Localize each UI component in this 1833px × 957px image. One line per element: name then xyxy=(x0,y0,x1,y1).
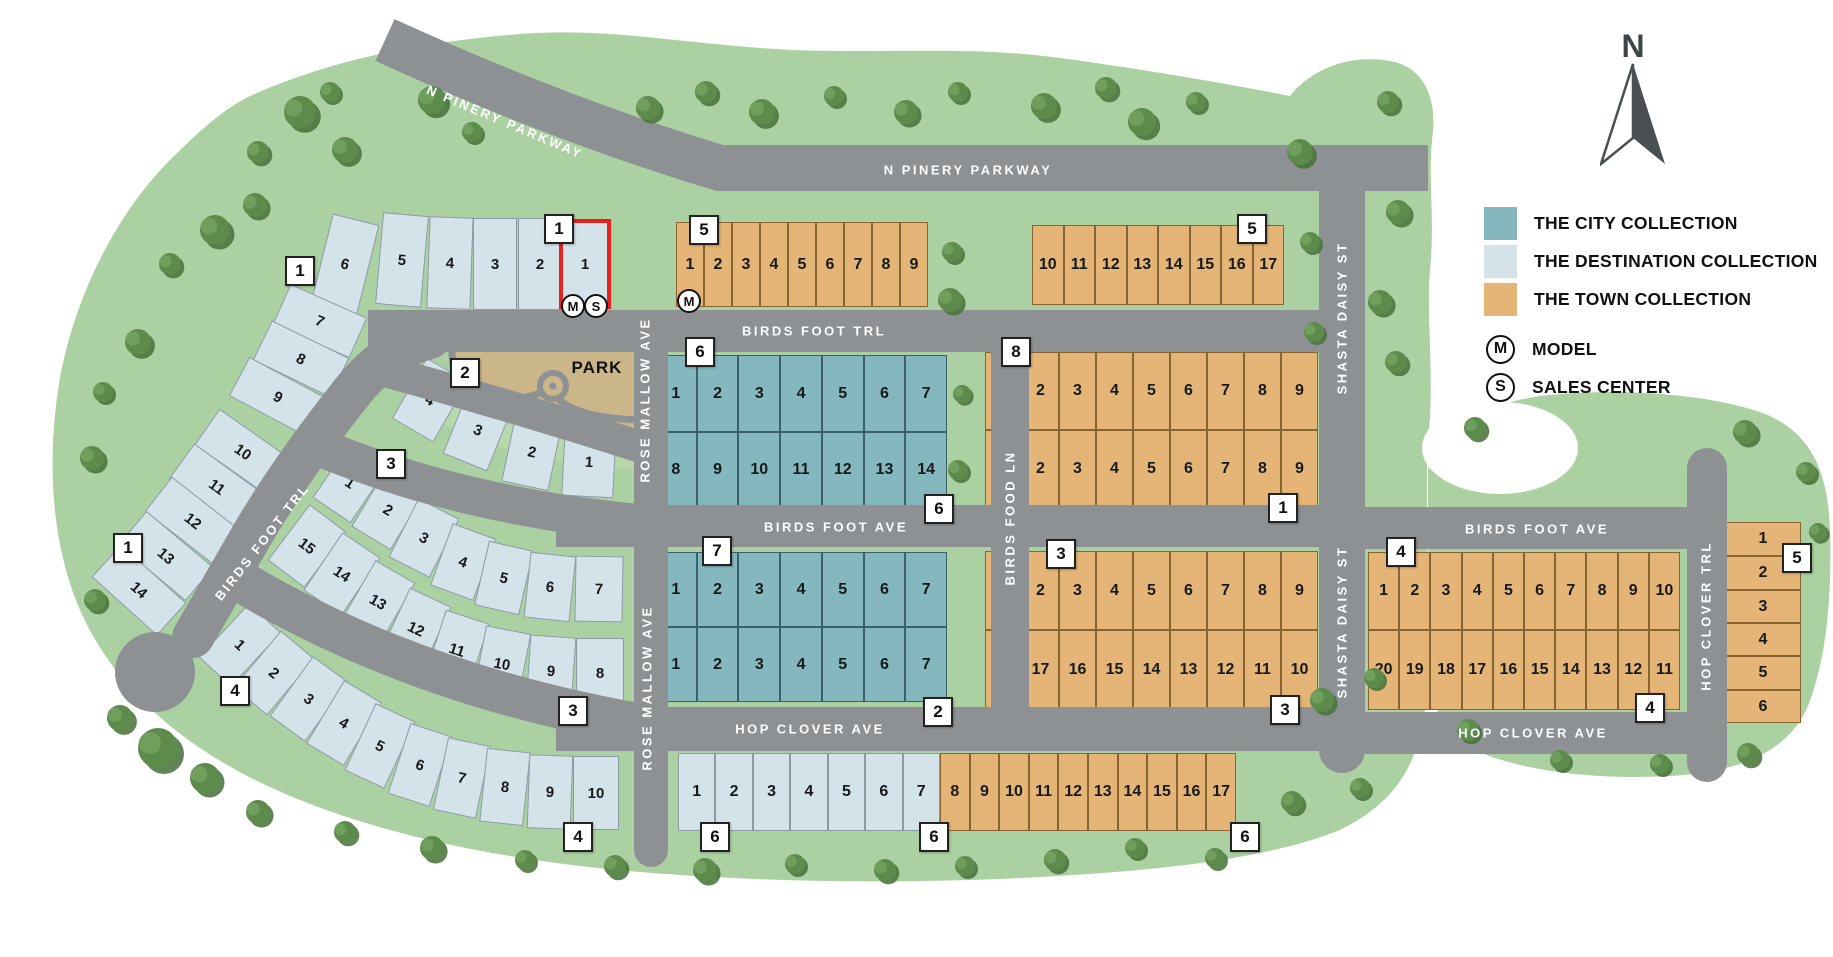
lot[interactable]: 5 xyxy=(1133,551,1170,630)
tree-icon xyxy=(1281,791,1306,816)
legend-item-town: THE TOWN COLLECTION xyxy=(1484,280,1818,318)
street-label: N PINERY PARKWAY xyxy=(424,82,585,162)
lot[interactable]: 18 xyxy=(985,630,1022,709)
tree-icon xyxy=(247,141,272,166)
tree-icon xyxy=(138,728,184,774)
lot-row: 5 xyxy=(1725,656,1801,690)
lot[interactable]: 6 xyxy=(1524,552,1555,630)
lot[interactable]: 3 xyxy=(1430,552,1461,630)
cul-de-sac xyxy=(115,632,195,712)
tree-icon xyxy=(693,858,721,886)
lot[interactable]: 6 xyxy=(1170,430,1207,507)
lot[interactable]: 13 xyxy=(1127,225,1159,305)
lot[interactable]: 8 xyxy=(1244,551,1281,630)
block-marker: 1 xyxy=(285,256,315,286)
tree-icon xyxy=(320,82,343,105)
tree-icon xyxy=(824,86,847,109)
lot[interactable]: 3 xyxy=(473,218,517,310)
legend-item-sales-center: S SALES CENTER xyxy=(1484,368,1818,406)
lot-row: 181716151413121110 xyxy=(985,630,1318,709)
street-label: BIRDS FOOT AVE xyxy=(764,520,908,535)
lot[interactable]: 4 xyxy=(780,552,822,627)
lot[interactable]: 6 xyxy=(864,552,906,627)
lot[interactable]: 6 xyxy=(864,627,906,702)
lot[interactable]: 11 xyxy=(780,432,822,507)
street-label: ROSE MALLOW AVE xyxy=(638,317,653,482)
tree-icon xyxy=(107,705,137,735)
lot[interactable]: 13 xyxy=(1170,630,1207,709)
block-marker: 6 xyxy=(1230,822,1260,852)
block-marker: 3 xyxy=(1270,695,1300,725)
block-marker: 4 xyxy=(1386,537,1416,567)
tree-icon xyxy=(1304,322,1327,345)
lot[interactable]: 4 xyxy=(760,222,788,307)
tree-icon xyxy=(938,288,966,316)
lot[interactable]: 16 xyxy=(1059,630,1096,709)
tree-icon xyxy=(1205,848,1228,871)
tree-icon xyxy=(953,385,974,406)
tree-icon xyxy=(948,82,971,105)
lot[interactable]: 3 xyxy=(1059,430,1096,507)
block-marker: 5 xyxy=(689,215,719,245)
block-marker: 6 xyxy=(919,822,949,852)
lot[interactable]: 3 xyxy=(1059,352,1096,430)
tree-icon xyxy=(1464,417,1489,442)
lot[interactable]: 10 xyxy=(1032,225,1064,305)
tree-icon xyxy=(84,589,109,614)
tree-icon xyxy=(1377,91,1402,116)
block-marker: 6 xyxy=(924,494,954,524)
legend-label: THE CITY COLLECTION xyxy=(1534,213,1738,234)
lot[interactable]: 6 xyxy=(1170,352,1207,430)
lot[interactable]: 10 xyxy=(999,753,1029,831)
lot-row: 123456789 xyxy=(985,551,1318,630)
lot-row: 20191817161514131211 xyxy=(1368,630,1680,710)
destination-swatch xyxy=(1484,245,1517,278)
tree-icon xyxy=(246,800,274,828)
tree-icon xyxy=(334,821,359,846)
lot[interactable]: 7 xyxy=(574,556,623,623)
park-roundabout-center xyxy=(550,383,557,390)
lot[interactable]: 7 xyxy=(905,355,947,432)
street-label: BIRDS FOOT AVE xyxy=(1465,522,1609,537)
town-swatch xyxy=(1484,283,1517,316)
lot-row: 1234567 xyxy=(655,627,947,702)
lot[interactable]: 6 xyxy=(865,753,902,831)
block-marker: 1 xyxy=(544,214,574,244)
tree-icon xyxy=(243,193,271,221)
lot[interactable]: 17 xyxy=(1462,630,1493,710)
lot[interactable]: 5 xyxy=(1725,656,1801,690)
lot[interactable]: 2 xyxy=(697,627,739,702)
tree-icon xyxy=(1300,232,1323,255)
lot[interactable]: 13 xyxy=(1088,753,1118,831)
street-label: HOP CLOVER TRL xyxy=(1699,541,1714,691)
block-marker: 4 xyxy=(563,822,593,852)
lot[interactable]: 6 xyxy=(864,355,906,432)
block-marker: 2 xyxy=(450,358,480,388)
lot-row: 123456789 xyxy=(985,352,1318,430)
tree-icon xyxy=(695,81,720,106)
lot[interactable]: 10 xyxy=(1649,552,1680,630)
lot[interactable]: 3 xyxy=(1725,590,1801,623)
tree-icon xyxy=(515,850,538,873)
tree-icon xyxy=(1186,92,1209,115)
lot[interactable]: 7 xyxy=(1207,352,1244,430)
tree-icon xyxy=(604,855,629,880)
legend-item-model: M MODEL xyxy=(1484,330,1818,368)
lot[interactable]: 2 xyxy=(501,413,563,491)
street-label: N PINERY PARKWAY xyxy=(884,163,1053,178)
lot[interactable]: 3 xyxy=(738,552,780,627)
lot[interactable]: 9 xyxy=(1281,551,1318,630)
block-marker: 1 xyxy=(113,533,143,563)
lot[interactable]: 9 xyxy=(1281,352,1318,430)
lot[interactable]: 17 xyxy=(1022,630,1059,709)
block-marker: 5 xyxy=(1237,214,1267,244)
lot[interactable]: 16 xyxy=(1177,753,1207,831)
lot[interactable]: 1 xyxy=(678,753,715,831)
tree-icon xyxy=(284,96,321,133)
lot[interactable]: 11 xyxy=(1029,753,1059,831)
tree-icon xyxy=(1350,778,1373,801)
lot[interactable]: 12 xyxy=(822,432,864,507)
lot[interactable]: 13 xyxy=(1586,630,1617,710)
tree-icon xyxy=(894,100,922,128)
lot[interactable]: 9 xyxy=(970,753,1000,831)
block-marker: 4 xyxy=(1635,693,1665,723)
lot[interactable]: 10 xyxy=(573,756,619,830)
lot[interactable]: 4 xyxy=(780,627,822,702)
lot-row: 891011121314 xyxy=(655,432,947,507)
lot[interactable]: 12 xyxy=(1095,225,1127,305)
lot[interactable]: 5 xyxy=(822,552,864,627)
legend-item-destination: THE DESTINATION COLLECTION xyxy=(1484,242,1818,280)
tree-icon xyxy=(636,96,664,124)
lot[interactable]: 2 xyxy=(715,753,752,831)
street-label: BIRDS FOOD LN xyxy=(1003,450,1018,585)
lot[interactable]: 15 xyxy=(1190,225,1222,305)
tree-icon xyxy=(1044,849,1069,874)
lot[interactable]: 3 xyxy=(738,627,780,702)
block-marker: 7 xyxy=(702,536,732,566)
block-marker: 3 xyxy=(376,449,406,479)
lot-row: 1234567 xyxy=(655,552,947,627)
tree-icon xyxy=(785,854,808,877)
legend-label: THE DESTINATION COLLECTION xyxy=(1534,251,1818,272)
lot[interactable]: 5 xyxy=(375,212,429,308)
lot[interactable]: 9 xyxy=(527,754,574,829)
lot[interactable]: 14 xyxy=(1118,753,1148,831)
lot[interactable]: 12 xyxy=(1207,630,1244,709)
block-marker: 1 xyxy=(1268,493,1298,523)
lot[interactable]: 13 xyxy=(864,432,906,507)
lot[interactable]: 6 xyxy=(1170,551,1207,630)
tree-icon xyxy=(1796,462,1819,485)
legend: THE CITY COLLECTION THE DESTINATION COLL… xyxy=(1484,204,1818,406)
lot[interactable]: 12 xyxy=(1058,753,1088,831)
lot[interactable]: 1 xyxy=(655,627,697,702)
lot[interactable]: 5 xyxy=(822,355,864,432)
lot[interactable]: 7 xyxy=(903,753,940,831)
lot[interactable]: 4 xyxy=(1725,623,1801,656)
model-icon: M xyxy=(1486,335,1515,364)
lot[interactable]: 18 xyxy=(1430,630,1461,710)
lot[interactable]: 9 xyxy=(900,222,928,307)
lot[interactable]: 5 xyxy=(1133,352,1170,430)
lot[interactable]: 15 xyxy=(1096,630,1133,709)
lot[interactable]: 9 xyxy=(697,432,739,507)
lot[interactable]: 8 xyxy=(940,753,970,831)
tree-icon xyxy=(955,856,978,879)
lot[interactable]: 7 xyxy=(905,552,947,627)
tree-icon xyxy=(1125,838,1148,861)
lot[interactable]: 9 xyxy=(1618,552,1649,630)
sales-center-badge: S xyxy=(584,294,608,318)
lot[interactable]: 4 xyxy=(1462,552,1493,630)
lot-row: 1234567 xyxy=(678,753,940,831)
lot[interactable]: 6 xyxy=(1725,690,1801,723)
tree-icon xyxy=(1031,93,1061,123)
lot-row: 6 xyxy=(1725,690,1801,723)
lot[interactable]: 4 xyxy=(426,216,473,309)
park-label: PARK xyxy=(572,358,623,378)
lot[interactable]: 14 xyxy=(1158,225,1190,305)
block-marker: 6 xyxy=(685,337,715,367)
lot[interactable]: 1 xyxy=(561,426,617,499)
tree-icon xyxy=(1128,108,1160,140)
lot[interactable]: 5 xyxy=(822,627,864,702)
north-arrow: N xyxy=(1600,30,1666,177)
lot[interactable]: 15 xyxy=(1524,630,1555,710)
lot[interactable]: 8 xyxy=(1244,352,1281,430)
lot[interactable]: 7 xyxy=(1555,552,1586,630)
white-clearing xyxy=(1422,402,1578,494)
legend-label: THE TOWN COLLECTION xyxy=(1534,289,1751,310)
lot-row: 3 xyxy=(1725,590,1801,623)
lot[interactable]: 5 xyxy=(828,753,865,831)
tree-icon xyxy=(1737,743,1762,768)
tree-icon xyxy=(1550,750,1573,773)
legend-label: MODEL xyxy=(1532,339,1597,360)
street-label: SHASTA DAISY ST xyxy=(1335,242,1350,395)
lot[interactable]: 5 xyxy=(1493,552,1524,630)
block-marker: 3 xyxy=(558,696,588,726)
site-map: PARK THE CITY COLLECTION THE DESTINATION… xyxy=(0,0,1833,957)
lot[interactable]: 11 xyxy=(1064,225,1096,305)
tree-icon xyxy=(200,215,235,250)
park-path-2 xyxy=(556,396,648,420)
lot[interactable]: 8 xyxy=(872,222,900,307)
tree-icon xyxy=(1368,290,1396,318)
tree-icon xyxy=(1650,754,1673,777)
tree-icon xyxy=(125,329,155,359)
street-label: SHASTA DAISY ST xyxy=(1335,546,1350,699)
tree-icon xyxy=(749,99,779,129)
lot-row: 891011121314151617 xyxy=(940,753,1236,831)
lot[interactable]: 5 xyxy=(788,222,816,307)
lot[interactable]: 8 xyxy=(479,748,530,826)
city-swatch xyxy=(1484,207,1517,240)
lot[interactable]: 14 xyxy=(1555,630,1586,710)
lot[interactable]: 20 xyxy=(1368,630,1399,710)
north-arrow-glyph xyxy=(1600,62,1666,172)
lot[interactable]: 16 xyxy=(1493,630,1524,710)
street-label: HOP CLOVER AVE xyxy=(735,722,885,737)
lot[interactable]: 4 xyxy=(1096,430,1133,507)
lot[interactable]: 7 xyxy=(844,222,872,307)
lot[interactable]: 10 xyxy=(738,432,780,507)
block-marker: 8 xyxy=(1001,337,1031,367)
lot[interactable]: 3 xyxy=(753,753,790,831)
tree-icon xyxy=(462,122,485,145)
north-label: N xyxy=(1600,30,1666,62)
lot[interactable]: 7 xyxy=(1207,430,1244,507)
lot[interactable]: 3 xyxy=(732,222,760,307)
lot[interactable]: 2 xyxy=(1022,430,1059,507)
lot[interactable]: 3 xyxy=(738,355,780,432)
legend-item-city: THE CITY COLLECTION xyxy=(1484,204,1818,242)
lot-row: 4 xyxy=(1725,623,1801,656)
street-label: BIRDS FOOT TRL xyxy=(742,324,886,339)
tree-icon xyxy=(190,763,225,798)
lot[interactable]: 17 xyxy=(1206,753,1236,831)
lot[interactable]: 19 xyxy=(1399,630,1430,710)
block-marker: 4 xyxy=(220,676,250,706)
tree-icon xyxy=(80,446,108,474)
lot[interactable]: 7 xyxy=(1207,551,1244,630)
block-marker: 2 xyxy=(923,697,953,727)
tree-icon xyxy=(1287,139,1317,169)
lot[interactable]: 7 xyxy=(905,627,947,702)
model-badge: M xyxy=(677,289,701,313)
legend-label: SALES CENTER xyxy=(1532,377,1671,398)
street-label: ROSE MALLOW AVE xyxy=(640,605,655,770)
tree-icon xyxy=(420,836,448,864)
park-roundabout xyxy=(540,373,566,399)
tree-icon xyxy=(1095,77,1120,102)
lot[interactable]: 6 xyxy=(816,222,844,307)
block-marker: 3 xyxy=(1046,539,1076,569)
tree-icon xyxy=(1809,523,1830,544)
lot[interactable]: 1 xyxy=(655,552,697,627)
tree-icon xyxy=(874,859,899,884)
block-marker: 5 xyxy=(1782,543,1812,573)
lot[interactable]: 8 xyxy=(1586,552,1617,630)
road-n-pinery-parkway xyxy=(385,40,1428,168)
lot[interactable]: 5 xyxy=(1133,430,1170,507)
lot[interactable]: 8 xyxy=(655,432,697,507)
tree-icon xyxy=(1733,420,1761,448)
lot[interactable]: 4 xyxy=(1096,352,1133,430)
tree-icon xyxy=(159,253,184,278)
lot[interactable]: 6 xyxy=(524,552,577,622)
tree-icon xyxy=(948,460,971,483)
lot[interactable]: 4 xyxy=(790,753,827,831)
tree-icon xyxy=(93,382,116,405)
model-badge: M xyxy=(561,294,585,318)
block-marker: 6 xyxy=(700,822,730,852)
tree-icon xyxy=(942,242,965,265)
lot[interactable]: 4 xyxy=(780,355,822,432)
lot[interactable]: 4 xyxy=(1096,551,1133,630)
tree-icon xyxy=(332,137,362,167)
tree-icon xyxy=(1385,351,1410,376)
tree-icon xyxy=(1386,200,1414,228)
street-label: HOP CLOVER AVE xyxy=(1458,726,1608,741)
lot[interactable]: 14 xyxy=(1133,630,1170,709)
sales-center-icon: S xyxy=(1486,373,1515,402)
lot[interactable]: 15 xyxy=(1147,753,1177,831)
